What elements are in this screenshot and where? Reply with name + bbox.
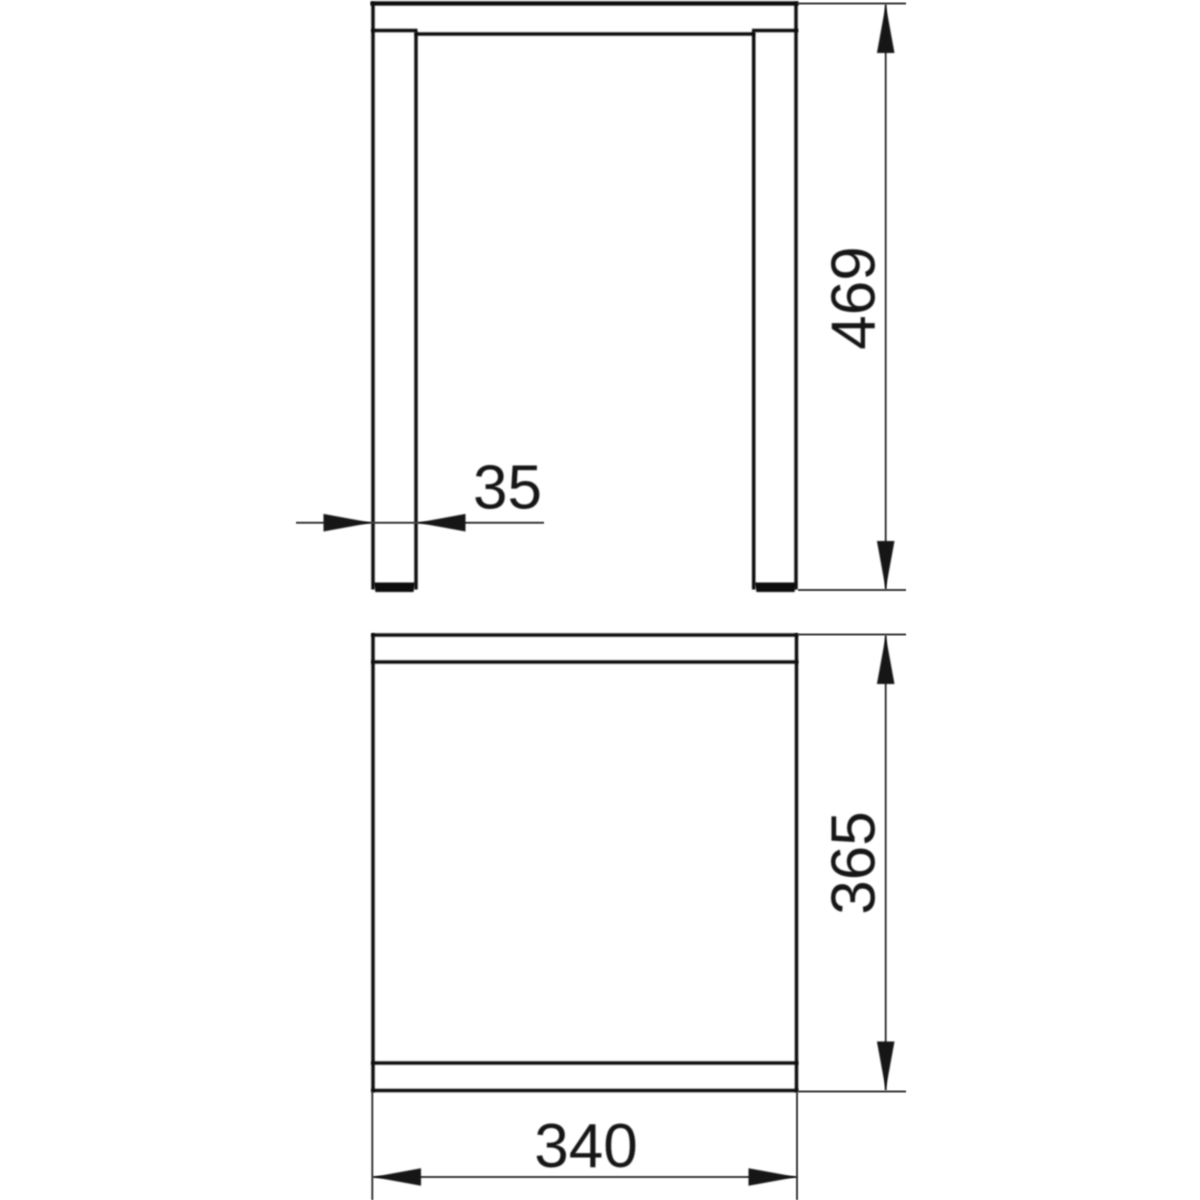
svg-text:35: 35 [473, 454, 542, 523]
svg-text:340: 340 [534, 1112, 637, 1181]
svg-text:469: 469 [820, 246, 889, 349]
svg-text:365: 365 [820, 811, 889, 914]
